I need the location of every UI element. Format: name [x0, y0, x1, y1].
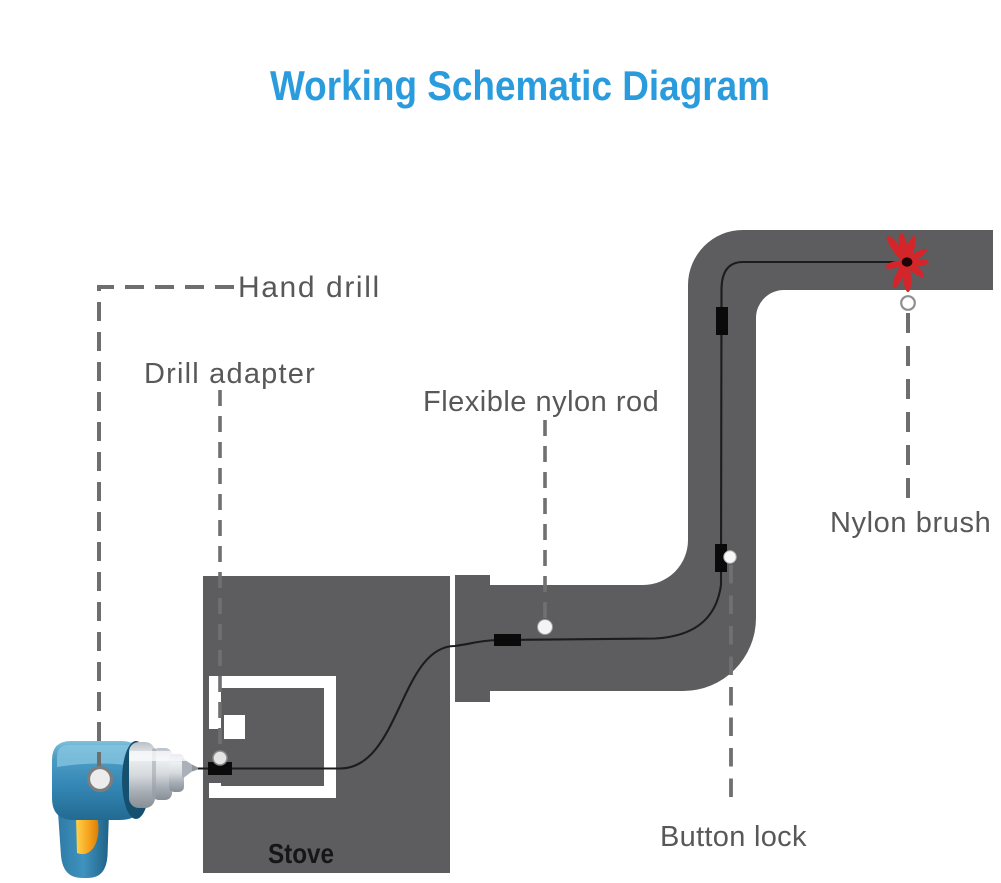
- svg-text:Flexible nylon rod: Flexible nylon rod: [423, 386, 659, 418]
- svg-text:Working Schematic Diagram: Working Schematic Diagram: [270, 62, 770, 109]
- svg-text:Nylon brush: Nylon brush: [830, 507, 991, 539]
- svg-text:Stove: Stove: [268, 838, 334, 869]
- svg-text:Drill adapter: Drill adapter: [144, 358, 316, 390]
- svg-text:Button lock: Button lock: [660, 821, 807, 853]
- svg-text:Hand drill: Hand drill: [238, 271, 381, 304]
